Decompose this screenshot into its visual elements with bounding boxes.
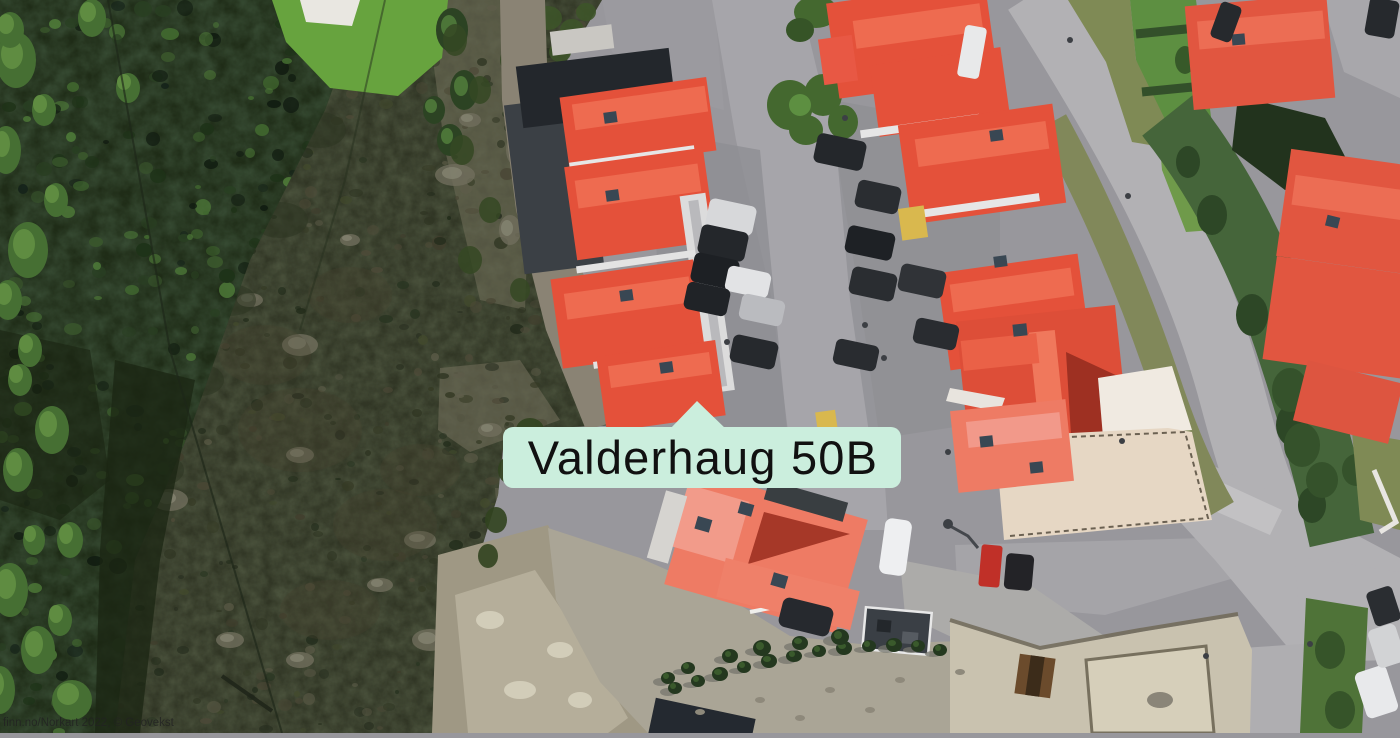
svg-text:Valderhaug 50B: Valderhaug 50B [528, 431, 878, 484]
svg-text:finn.no/Norkart 2022, © Geovek: finn.no/Norkart 2022, © Geovekst [3, 717, 175, 729]
